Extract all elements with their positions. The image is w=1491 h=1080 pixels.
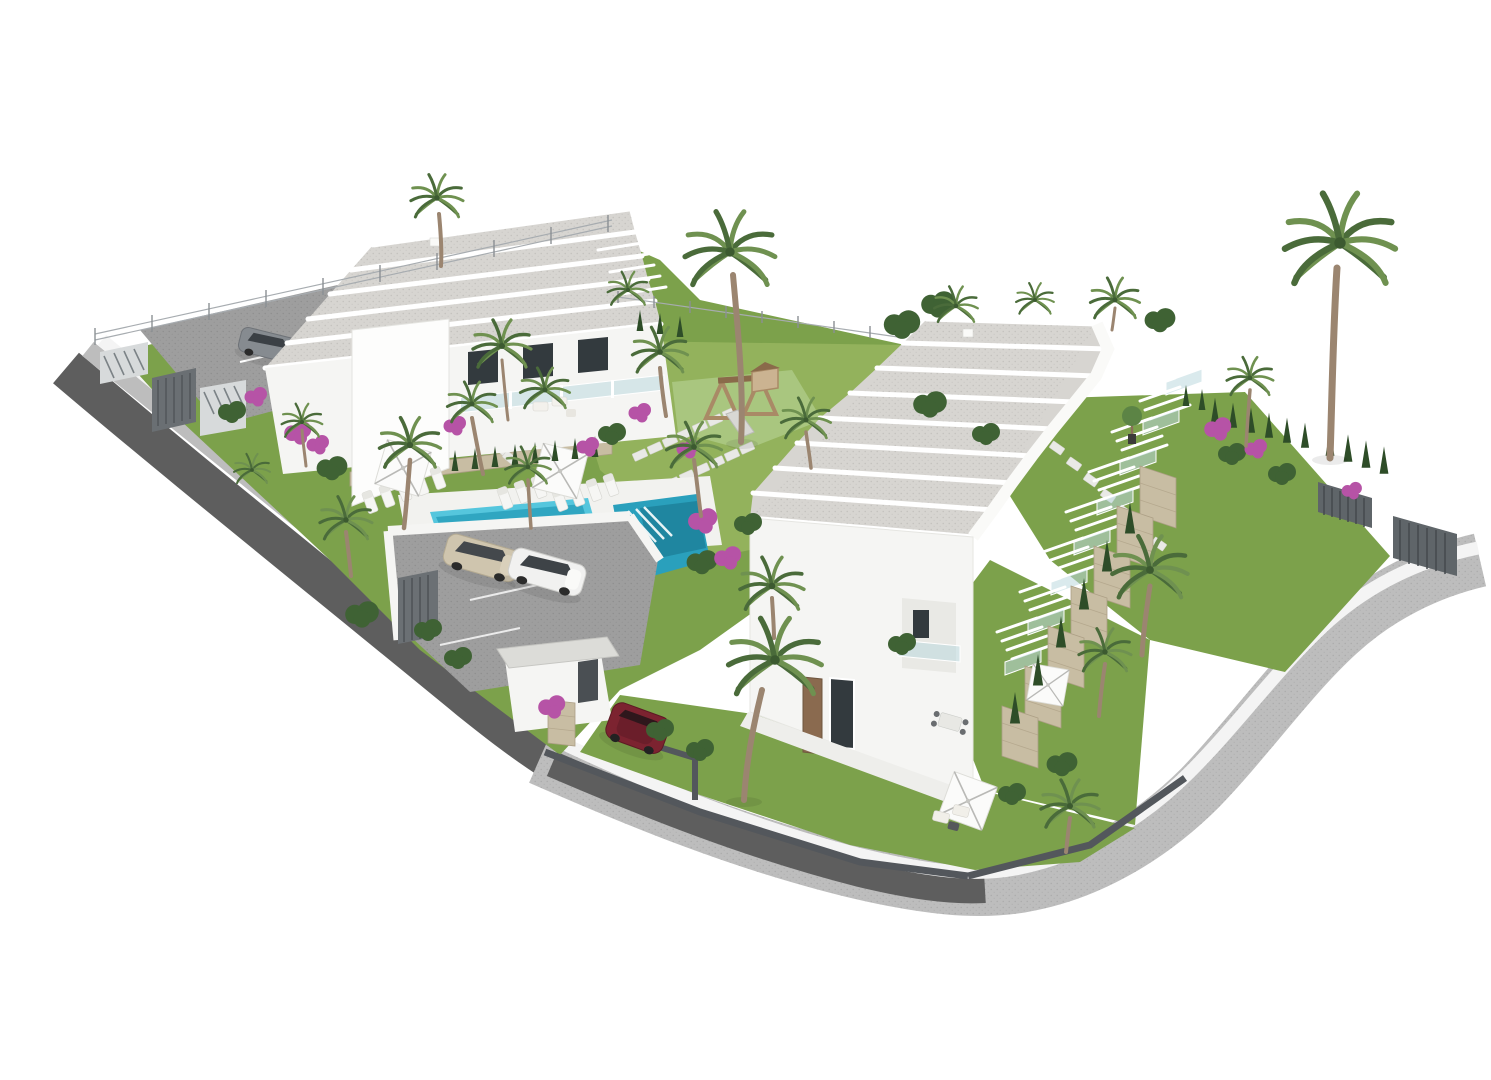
upper-window xyxy=(913,610,929,638)
window xyxy=(578,337,608,373)
window xyxy=(830,678,854,749)
play-house xyxy=(752,368,778,392)
render-canvas: .fr1{stroke:var(--frond_dark);stroke-wid… xyxy=(0,0,1491,1080)
roof-chimney xyxy=(963,329,973,337)
entrance-doorway xyxy=(578,659,598,703)
window xyxy=(468,349,498,385)
site-plan-render: .fr1{stroke:var(--frond_dark);stroke-wid… xyxy=(0,0,1491,1080)
